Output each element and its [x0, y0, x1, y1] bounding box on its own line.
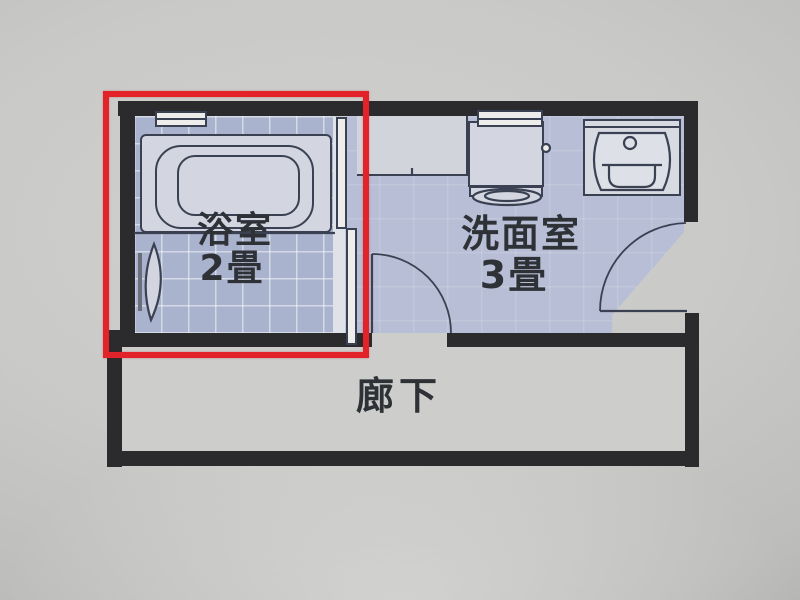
- bathroom-highlight-box: [103, 91, 369, 358]
- washing-machine-knob: [542, 144, 550, 152]
- washroom-label: 洗面室: [446, 215, 596, 253]
- washroom-size-label: 3畳: [444, 256, 584, 294]
- door-swing-arc-bottom: [372, 254, 451, 333]
- floorplan-photo: 浴室 2畳 洗面室 3畳 廊下: [0, 0, 800, 600]
- washbasin-bowl: [594, 133, 670, 190]
- door-swing-arc-right: [600, 223, 686, 311]
- hallway-label: 廊下: [329, 377, 469, 415]
